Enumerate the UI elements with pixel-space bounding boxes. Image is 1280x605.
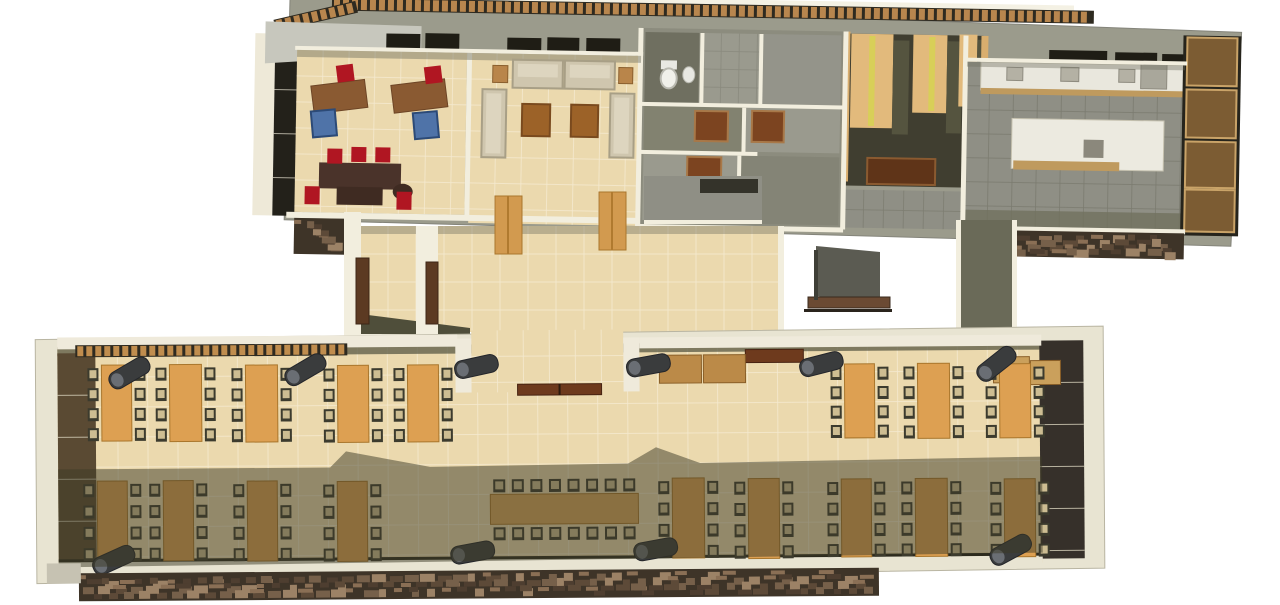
wood-bench-seam	[611, 192, 613, 250]
stone	[98, 586, 110, 594]
roof-pergola-slats-slat	[640, 4, 646, 15]
stone	[1165, 252, 1176, 260]
meeting-table-ext	[336, 187, 382, 206]
stone	[357, 575, 370, 582]
sink	[1119, 69, 1135, 82]
roof-pergola-slats-slat	[901, 8, 907, 19]
meeting-chair-red	[327, 148, 342, 163]
roof-pergola-slats-slat	[928, 9, 934, 20]
roof-pergola-slats-slat	[775, 6, 781, 17]
guest-chair-blue	[413, 111, 439, 139]
roof-pergola-slats-slat	[514, 2, 520, 13]
stone	[405, 575, 419, 582]
stone	[364, 590, 379, 597]
chair-seat	[283, 431, 290, 439]
corridor-door	[426, 262, 438, 324]
roof-pergola-slats-slat	[811, 7, 817, 18]
entry-pergola-slats-slat	[338, 344, 344, 354]
stone	[790, 581, 800, 589]
stone	[727, 583, 735, 590]
stone	[113, 585, 126, 589]
stone	[605, 578, 613, 586]
roof-pergola-slats-slat	[820, 7, 826, 18]
roof-pergola-slats-slat	[748, 6, 754, 17]
stone	[531, 572, 540, 576]
stone	[812, 575, 825, 579]
stone	[1126, 248, 1140, 256]
stone	[753, 588, 768, 594]
chair-seat	[137, 430, 144, 438]
stone	[294, 220, 301, 224]
stone	[394, 588, 402, 592]
restroom-floor	[702, 33, 759, 104]
roof-pergola-slats-slat	[478, 1, 484, 12]
roof-pergola-slats-slat	[892, 8, 898, 19]
chair-seat	[444, 431, 451, 439]
meeting-chair-red	[396, 192, 411, 210]
stone	[1148, 249, 1162, 256]
stone	[1152, 239, 1161, 247]
stone	[183, 579, 191, 584]
roof-pergola-slats-slat	[586, 3, 592, 14]
dining-table	[245, 365, 278, 442]
stone	[307, 221, 314, 228]
sofa-cushion	[518, 64, 558, 78]
roof-pergola-slats-slat	[766, 6, 772, 17]
stone	[1078, 240, 1088, 244]
roof-pergola-slats-slat	[604, 3, 610, 14]
stone	[520, 585, 532, 591]
office-desk	[391, 79, 448, 113]
roof-pergola-slats-slat	[541, 2, 547, 13]
entry-pergola-slats-slat	[86, 346, 92, 356]
roof-pergola-slats-slat	[910, 9, 916, 20]
chair-seat	[158, 390, 165, 398]
stone	[627, 571, 638, 575]
chair-seat	[880, 388, 887, 396]
chair-seat	[444, 410, 451, 418]
chair-seat	[158, 410, 165, 418]
stone	[864, 587, 873, 594]
stone	[786, 589, 801, 594]
entry-pergola-slats-slat	[167, 346, 173, 356]
stone	[553, 586, 565, 591]
chair-seat	[833, 388, 840, 396]
stone	[631, 583, 646, 590]
chair-seat	[906, 427, 913, 435]
roof-pergola-slats-slat	[550, 2, 556, 13]
stone	[420, 574, 435, 582]
roof-pergola-slats-slat	[829, 7, 835, 18]
stone	[834, 589, 841, 594]
stone	[109, 593, 118, 599]
roof-pergola-slats-slat	[1027, 11, 1033, 22]
roof-pergola-slats-slat	[658, 4, 664, 15]
chair-seat	[1036, 388, 1043, 396]
stone	[161, 585, 175, 589]
stone	[779, 574, 792, 579]
chair-seat	[233, 370, 240, 378]
entry-pergola-slats-slat	[122, 346, 128, 356]
chair-seat	[906, 408, 913, 416]
chair-seat	[90, 410, 97, 418]
chair-seat	[234, 431, 241, 439]
stone	[298, 589, 313, 593]
chair-seat	[955, 427, 962, 435]
entry-pergola-slats-slat	[230, 345, 236, 355]
roof-pergola-slats-slat	[622, 4, 628, 15]
roof-pergola-slats-slat	[712, 5, 718, 16]
stone	[139, 591, 150, 599]
wall-cap	[956, 220, 961, 346]
roof-pergola-slats-slat	[982, 10, 988, 21]
guest-chair-blue	[311, 109, 337, 137]
stone	[742, 582, 751, 590]
stone	[516, 573, 524, 581]
stone	[1115, 239, 1129, 245]
restroom-floor-2	[762, 34, 841, 105]
entry-pergola-slats-slat	[329, 344, 335, 354]
stone	[94, 594, 102, 599]
roof-pergola-slats-slat	[532, 2, 538, 13]
meeting-chair-red	[375, 147, 390, 162]
chair-seat	[879, 369, 886, 377]
stone	[494, 579, 508, 586]
roof-pergola-slats-slat	[757, 6, 763, 17]
chair-seat	[325, 371, 332, 379]
chair-seat	[1036, 427, 1043, 435]
roof-pergola-slats-slat	[937, 9, 943, 20]
stone	[764, 575, 776, 579]
stone	[564, 573, 573, 581]
stone	[705, 589, 719, 595]
stone	[446, 580, 459, 587]
chair-seat	[234, 390, 241, 398]
back-room-console	[700, 179, 758, 193]
trellis-beam	[808, 297, 890, 308]
wall-cap	[741, 108, 746, 154]
stone	[322, 236, 336, 243]
sink	[1061, 67, 1079, 81]
roof-pergola-slats-slat	[613, 3, 619, 14]
roof-pergola-slats-slat	[505, 2, 511, 13]
roof-pergola-slats-slat	[577, 3, 583, 14]
roof-pergola-slats-slat	[955, 9, 961, 20]
roof-pergola-slats-slat	[685, 5, 691, 16]
wall-cap	[778, 226, 784, 332]
stone	[716, 576, 727, 580]
meeting-table	[319, 162, 401, 189]
chair-seat	[833, 427, 840, 435]
dining-table	[844, 364, 875, 438]
desk-chair-red	[424, 65, 443, 84]
storage-floor-line	[923, 191, 924, 229]
stone	[1089, 249, 1099, 255]
roof-pergola-slats-slat	[847, 8, 853, 19]
roof-pergola-slats-slat	[694, 5, 700, 16]
stone	[557, 578, 564, 586]
entry-pergola-slats-slat	[311, 345, 317, 355]
stone	[335, 581, 345, 587]
chair-seat	[283, 410, 290, 418]
east-wood-panel	[1186, 89, 1237, 138]
sofa-cushion	[485, 93, 501, 153]
floor-plan-stage	[0, 0, 1280, 605]
stone	[305, 584, 313, 588]
storage-door-panel	[867, 158, 935, 185]
stone	[331, 589, 346, 597]
roof-pergola-slats-slat	[1009, 10, 1015, 21]
trellis-rail	[804, 309, 892, 312]
stone	[1026, 241, 1037, 245]
roof-pergola-slats-slat	[739, 6, 745, 17]
stone	[616, 584, 630, 590]
chair-seat	[206, 369, 213, 377]
wood-bench-seam	[507, 196, 509, 254]
roof-pergola-slats-slat	[721, 5, 727, 16]
chair-seat	[207, 410, 214, 418]
roof-pergola-slats-slat	[838, 7, 844, 18]
chair-seat	[906, 388, 913, 396]
courtyard-trellis-panel	[816, 246, 880, 304]
3d-floor-plan-render	[0, 0, 1280, 605]
stone	[1054, 235, 1062, 242]
stone	[457, 587, 467, 592]
entry-pergola-slats-slat	[140, 346, 146, 356]
stone	[124, 592, 134, 599]
entry-pergola-slats-slat	[248, 345, 254, 355]
dining-table	[337, 365, 369, 442]
stone	[723, 571, 736, 575]
roof-pergola-slats-slat	[424, 0, 430, 11]
side-table	[619, 68, 633, 84]
entry-pergola-slats-slat	[149, 346, 155, 356]
chair-seat	[137, 390, 144, 398]
stone	[427, 589, 435, 597]
roof-pergola-slats-slat	[388, 0, 394, 11]
stone	[642, 590, 654, 595]
stone	[801, 588, 808, 594]
chair-seat	[326, 411, 333, 419]
roof-pergola-slats-slat	[442, 0, 448, 11]
stone	[209, 584, 224, 588]
wall-cap	[644, 220, 762, 224]
dining-table	[407, 365, 439, 442]
stone	[601, 586, 614, 591]
stone	[379, 589, 386, 597]
stone	[490, 587, 500, 591]
stone	[283, 590, 297, 598]
roof-pergola-slats-slat	[973, 10, 979, 21]
chair-seat	[207, 390, 214, 398]
roof-pergola-slats-slat	[1054, 11, 1060, 22]
stone	[860, 575, 874, 579]
stone	[272, 583, 280, 588]
stone	[771, 570, 785, 574]
roof-pergola-slats-slat	[451, 1, 457, 12]
stone	[231, 578, 240, 583]
stone	[409, 587, 418, 592]
stone	[701, 577, 711, 585]
stone	[649, 585, 663, 590]
entry-pergola-slats-slat	[95, 346, 101, 356]
entry-pergola-slats-slat	[302, 345, 308, 355]
entry-pergola-slats-slat	[239, 345, 245, 355]
entry-pergola-slats-slat	[176, 346, 182, 356]
stone	[316, 591, 330, 598]
roof-pergola-slats-slat	[1045, 11, 1051, 22]
stone	[568, 585, 581, 591]
sofa-cushion	[613, 97, 629, 153]
stone	[401, 583, 411, 587]
chair-seat	[283, 390, 290, 398]
serving-console	[703, 355, 745, 383]
stone	[505, 586, 516, 591]
coffee-table	[522, 104, 551, 136]
sink	[1007, 67, 1023, 80]
storage-floor-line	[903, 191, 904, 229]
entry-pergola-slats-slat	[131, 346, 137, 356]
corridor-door	[356, 258, 369, 324]
meeting-chair-red	[351, 147, 366, 162]
stone	[224, 583, 231, 588]
stone	[686, 578, 695, 585]
stone	[690, 590, 703, 595]
entry-pergola-slats	[75, 343, 347, 357]
stone	[468, 574, 475, 582]
chair-seat	[1036, 407, 1043, 415]
stone	[187, 590, 199, 598]
meeting-chair-red	[304, 186, 319, 204]
stone	[279, 578, 289, 583]
stone	[150, 578, 158, 584]
dining-table	[917, 363, 950, 438]
roof-pergola-slats-slat	[964, 10, 970, 21]
vestibule-door-split	[559, 384, 561, 395]
entry-pergola-slats-slat	[221, 345, 227, 355]
dining-table	[169, 364, 202, 441]
stone	[261, 576, 272, 583]
roof-pergola-slats-slat	[496, 1, 502, 12]
chair-seat	[954, 368, 961, 376]
stone	[353, 583, 362, 587]
kitchen-island-wood-edge	[1013, 160, 1119, 171]
chair-seat	[374, 411, 381, 419]
stone	[102, 578, 109, 584]
stone	[1128, 234, 1135, 240]
storage-floor-line	[863, 190, 864, 228]
stone	[268, 591, 281, 598]
stone	[320, 583, 329, 588]
stone	[246, 577, 256, 583]
entry-pergola-slats-slat	[185, 346, 191, 356]
stone	[823, 582, 833, 589]
stone	[464, 582, 476, 587]
stone	[416, 582, 427, 587]
roof-pergola-slats-slat	[730, 5, 736, 16]
stone	[475, 588, 484, 596]
roof-pergola-slats-slat	[523, 2, 529, 13]
roof-pergola-slats-slat	[1000, 10, 1006, 21]
wall-double-door	[745, 349, 803, 362]
entry-pergola-slats-slat	[158, 346, 164, 356]
stone	[83, 587, 94, 594]
roof-pergola-slats-slat	[559, 2, 565, 13]
door-panel-laid	[752, 111, 785, 143]
stone	[1039, 236, 1052, 240]
island-cooktop-inset	[1083, 140, 1103, 158]
storage-floor-line	[943, 191, 944, 229]
stone	[838, 581, 849, 589]
chair-seat	[955, 407, 962, 415]
chair-seat	[90, 390, 97, 398]
entry-pergola-slats-slat	[275, 345, 281, 355]
stone	[1065, 244, 1073, 248]
entry-pergola-slats-slat	[284, 345, 290, 355]
stone	[120, 580, 135, 584]
roof-pergola-slats-slat	[568, 3, 574, 14]
storage-floor-line	[883, 190, 884, 228]
sofa-cushion	[570, 65, 610, 79]
stone	[849, 588, 857, 594]
chair-seat	[396, 411, 403, 419]
chair-seat	[880, 427, 887, 435]
roof-pergola-slats-slat	[631, 4, 637, 15]
east-wood-panel	[1185, 141, 1236, 188]
stone	[257, 584, 264, 588]
roof-pergola-slats-slat	[595, 3, 601, 14]
chair-seat	[905, 368, 912, 376]
stone	[372, 574, 386, 582]
chair-seat	[880, 407, 887, 415]
chair-seat	[374, 391, 381, 399]
chair-seat	[157, 370, 164, 378]
chair-seat	[89, 370, 96, 378]
entry-step	[47, 563, 81, 583]
roof-pergola-slats-slat	[1063, 11, 1069, 22]
stone	[538, 587, 549, 591]
entry-pergola-slats-slat	[77, 346, 83, 356]
shelf-unit-side	[892, 40, 910, 134]
chair-seat	[988, 408, 995, 416]
stone	[594, 591, 605, 596]
stone	[368, 582, 378, 587]
stone	[442, 588, 451, 592]
stone	[542, 579, 557, 586]
chair-seat	[326, 391, 333, 399]
roof-pergola-slats-slat	[1018, 10, 1024, 21]
stone	[816, 587, 824, 594]
stone	[675, 571, 687, 575]
chair-seat	[833, 408, 840, 416]
coffee-table	[571, 105, 599, 137]
chair-seat	[443, 370, 450, 378]
roof-pergola-slats-slat	[919, 9, 925, 20]
stone	[612, 573, 622, 581]
roof-pergola-slats-slat	[487, 1, 493, 12]
stone	[1102, 244, 1114, 250]
roof-pergola-slats-slat	[703, 5, 709, 16]
entry-pergola-slats-slat	[212, 345, 218, 355]
side-table	[493, 65, 508, 82]
stone	[483, 572, 491, 576]
roof-pergola-slats-slat	[649, 4, 655, 15]
stone	[664, 584, 679, 590]
chair-seat	[373, 370, 380, 378]
window-opening	[425, 33, 459, 50]
roof-pergola-slats-slat	[991, 10, 997, 21]
chair-seat	[158, 431, 165, 439]
